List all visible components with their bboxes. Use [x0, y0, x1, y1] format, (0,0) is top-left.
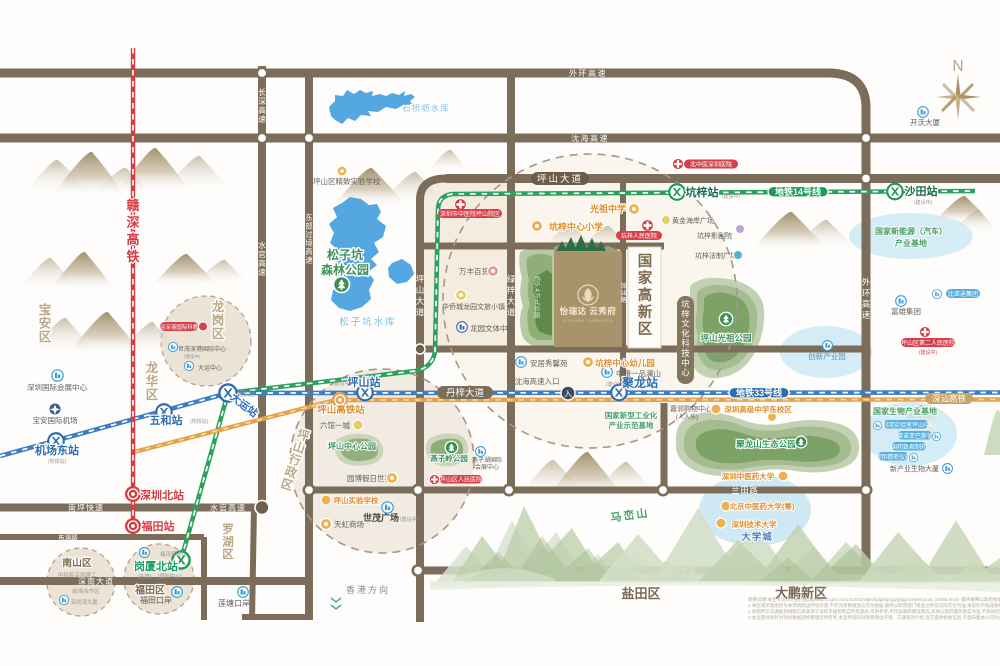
svg-text:地铁14号线: 地铁14号线: [775, 186, 821, 197]
svg-text:会展中心: 会展中心: [475, 463, 499, 471]
svg-text:盐田区: 盐田区: [621, 586, 660, 601]
svg-text:松子坑水库: 松子坑水库: [339, 316, 397, 328]
svg-text:坪山大道: 坪山大道: [416, 274, 425, 317]
svg-text:龙华区: 龙华区: [145, 360, 159, 402]
svg-text:园博假日世界: 园博假日世界: [347, 473, 392, 483]
svg-text:深圳市中医院坪山院区: 深圳市中医院坪山院区: [440, 210, 500, 218]
svg-text:坑梓文化科技中心: 坑梓文化科技中心: [681, 299, 690, 378]
svg-text:(建设中): (建设中): [333, 380, 352, 387]
svg-text:南坪快速: 南坪快速: [68, 503, 104, 513]
svg-text:国家生物产业基地: 国家生物产业基地: [873, 406, 937, 416]
svg-text:坪山区第二人民医院: 坪山区第二人民医院: [901, 339, 955, 347]
svg-text:岗厦北站: 岗厦北站: [134, 559, 178, 573]
svg-text:国家新能源（汽车）: 国家新能源（汽车）: [875, 226, 947, 236]
svg-text:南山区: 南山区: [62, 556, 92, 569]
svg-text:北京中医药大学(筹): 北京中医药大学(筹): [730, 501, 795, 511]
svg-text:坪山实验学校: 坪山实验学校: [334, 495, 379, 505]
svg-text:宝安国际机场: 宝安国际机场: [33, 415, 78, 425]
svg-text:石桥坜水库: 石桥坜水库: [402, 103, 450, 113]
svg-text:国家高新区: 国家高新区: [638, 253, 653, 338]
svg-text:光祖中学: 光祖中学: [589, 203, 626, 214]
svg-text:理邦精密仪器: 理邦精密仪器: [875, 453, 911, 461]
svg-text:大学城: 大学城: [741, 531, 773, 543]
svg-text:沙田站: 沙田站: [905, 184, 938, 198]
svg-text:(建设中): (建设中): [914, 199, 933, 206]
svg-text:国家新型工业化: 国家新型工业化: [605, 410, 658, 420]
svg-text:坑梓法制广场: 坑梓法制广场: [695, 251, 737, 260]
svg-text:燕子湖国际: 燕子湖国际: [472, 456, 502, 464]
svg-text:中粮一品澜山: 中粮一品澜山: [616, 368, 661, 378]
svg-text:(建设中): (建设中): [919, 349, 938, 356]
svg-text:东部过境高速: 东部过境高速: [305, 212, 313, 265]
svg-text:中科院深圳理工: 中科院深圳理工: [58, 571, 97, 579]
svg-text:深圳北站: 深圳北站: [140, 488, 184, 502]
svg-text:深圳中医药大学: 深圳中医药大学: [722, 471, 775, 481]
svg-text:入: 入: [564, 390, 572, 399]
svg-text:深圳湾实验室坪山中心: 深圳湾实验室坪山中心: [876, 421, 936, 429]
svg-text:世茂深港国际中心: 世茂深港国际中心: [178, 345, 226, 353]
svg-text:五和站: 五和站: [150, 413, 183, 427]
svg-text:产业示范基地: 产业示范基地: [609, 420, 654, 430]
svg-text:福田保税区: 福田保税区: [160, 550, 188, 558]
svg-text:约5.4万㎡公园: 约5.4万㎡公园: [533, 276, 541, 318]
svg-text:(建设中): (建设中): [400, 516, 419, 523]
svg-text:大运中心: 大运中心: [198, 364, 222, 372]
svg-text:北中医深圳医院: 北中医深圳医院: [690, 161, 732, 169]
svg-text:国药致君制药: 国药致君制药: [891, 443, 927, 451]
svg-text:水官高速: 水官高速: [258, 240, 266, 277]
svg-text:深圳高级中学东校区: 深圳高级中学东校区: [724, 404, 792, 414]
svg-text:(地铁站): (地铁站): [236, 391, 255, 398]
svg-text:坑梓站: 坑梓站: [686, 185, 719, 199]
svg-text:(地铁站): (地铁站): [48, 458, 67, 465]
svg-text:坪山高铁站: 坪山高铁站: [317, 404, 365, 416]
svg-text:龙园文体中心: 龙园文体中心: [470, 323, 515, 333]
svg-text:YIRUIDA YUNXIUFU: YIRUIDA YUNXIUFU: [563, 318, 613, 323]
svg-text:坪山区人民医院: 坪山区人民医院: [440, 476, 482, 484]
svg-text:(国际中心): (国际中心): [158, 573, 182, 580]
svg-text:莲塘口岸: 莲塘口岸: [218, 598, 250, 608]
svg-text:绿梓大道: 绿梓大道: [507, 274, 516, 317]
svg-text:(地铁站): (地铁站): [190, 418, 209, 425]
svg-text:大运深港国际科教城: 大运深港国际科教城: [154, 323, 204, 331]
svg-text:深汕路: 深汕路: [620, 282, 626, 304]
svg-text:(建设中): (建设中): [606, 381, 625, 388]
svg-text:外环高速: 外环高速: [862, 277, 871, 320]
svg-text:燕子岭公园: 燕子岭公园: [430, 453, 468, 463]
svg-text:福田口岸: 福田口岸: [140, 596, 172, 605]
svg-text:坑梓中心幼儿园: 坑梓中心幼儿园: [595, 358, 655, 368]
svg-text:布澜路: 布澜路: [58, 533, 78, 542]
svg-text:N: N: [952, 58, 963, 75]
svg-text:宝安区: 宝安区: [39, 302, 52, 344]
svg-text:(在建): (在建): [138, 573, 152, 580]
svg-text:安居秀馨苑: 安居秀馨苑: [530, 358, 568, 368]
svg-text:(建设中): (建设中): [722, 193, 741, 200]
svg-text:坪山光祖公园: 坪山光祖公园: [700, 333, 751, 343]
svg-text:水官高速: 水官高速: [210, 503, 246, 513]
svg-text:六馆一城: 六馆一城: [320, 420, 350, 430]
svg-text:天虹商场: 天虹商场: [334, 519, 364, 529]
svg-text:聚龙山生态公园: 聚龙山生态公园: [735, 439, 796, 449]
svg-text:产业基地: 产业基地: [895, 238, 927, 248]
svg-text:森林公园: 森林公园: [321, 262, 369, 277]
svg-text:万丰百货: 万丰百货: [459, 266, 489, 276]
svg-text:松子坑: 松子坑: [327, 247, 363, 262]
svg-text:新产业生物大厦: 新产业生物大厦: [890, 464, 939, 473]
svg-text:丹梓大道: 丹梓大道: [446, 387, 485, 399]
svg-text:郑重说明:本宣传资料为要约邀请(www.sz.gov.cn/: 郑重说明:本宣传资料为要约邀请(www.sz.gov.cn/szzt2010/w…: [748, 596, 1000, 603]
svg-text:坑梓中心小学: 坑梓中心小学: [549, 221, 603, 232]
svg-text:赛诺菲巴斯德: 赛诺菲巴斯德: [897, 432, 933, 440]
svg-text:黄金海岸广场: 黄金海岸广场: [672, 216, 714, 225]
svg-text:深圳技术大学: 深圳技术大学: [732, 519, 777, 529]
svg-text:福田站: 福田站: [141, 519, 175, 533]
svg-text:坪山站: 坪山站: [348, 375, 381, 389]
svg-text:深圳国际会展中心: 深圳国际会展中心: [27, 382, 87, 392]
svg-text:坪山大道: 坪山大道: [537, 173, 583, 185]
svg-text:外环高速: 外环高速: [569, 68, 607, 78]
svg-text:坑梓影剧院: 坑梓影剧院: [697, 231, 732, 240]
svg-text:龙岗区: 龙岗区: [211, 299, 225, 341]
svg-text:(建设中): (建设中): [184, 353, 201, 360]
svg-text:机场东站: 机场东站: [35, 443, 79, 457]
svg-text:(人人乐): (人人乐): [676, 414, 698, 421]
svg-text:嘉邻购物中心: 嘉邻购物中心: [670, 404, 712, 413]
svg-text:沈海高速: 沈海高速: [571, 133, 609, 143]
svg-text:福田区: 福田区: [134, 584, 165, 597]
svg-text:坑梓人民医院: 坑梓人民医院: [621, 232, 657, 240]
svg-text:开沃大厦: 开沃大厦: [910, 117, 940, 127]
svg-text:坪山区精致实验学校: 坪山区精致实验学校: [313, 176, 381, 186]
svg-text:华侨城龙园文旅小镇: 华侨城龙园文旅小镇: [442, 302, 505, 311]
svg-text:深圳湾大厦: 深圳湾大厦: [70, 598, 98, 606]
svg-text:前海合作区: 前海合作区: [72, 587, 100, 595]
svg-text:怡瑞达 云秀府: 怡瑞达 云秀府: [560, 306, 617, 316]
svg-text:比亚迪集团: 比亚迪集团: [948, 290, 978, 298]
svg-text:世茂广场: 世茂广场: [363, 512, 399, 523]
svg-text:沈海高速入口: 沈海高速入口: [515, 376, 560, 386]
svg-text:创新产业园: 创新产业园: [808, 351, 846, 361]
svg-text:坪山中心公园: 坪山中心公园: [328, 441, 376, 451]
svg-text:1.本区域示意图仅为本项目周边环境示意,不作为项目规划与交付: 1.本区域示意图仅为本项目周边环境示意,不作为项目规划与交付依据,最终以政府部门…: [748, 602, 1000, 609]
svg-text:罗湖区: 罗湖区: [222, 523, 234, 561]
svg-text:3.本企部绿地针对现状数据测绘整理仅供参考,本宣传资料对项目: 3.本企部绿地针对现状数据测绘整理仅供参考,本宣传资料对项目周边环境、交通等的介…: [748, 614, 1000, 621]
svg-text:富雄集团: 富雄集团: [891, 306, 921, 316]
svg-text:深汕高铁: 深汕高铁: [932, 394, 967, 404]
svg-text:2.本图所示交通规划线路信息来源于深圳市规划和自然资源局,仅: 2.本图所示交通规划线路信息来源于深圳市规划和自然资源局,仅供参考,不代表最终建…: [748, 608, 1000, 615]
svg-text:香港方向: 香港方向: [346, 584, 390, 595]
svg-text:兰田路: 兰田路: [732, 485, 759, 495]
svg-text:长深高速: 长深高速: [258, 87, 266, 124]
svg-text:地铁33号线: 地铁33号线: [736, 387, 782, 398]
